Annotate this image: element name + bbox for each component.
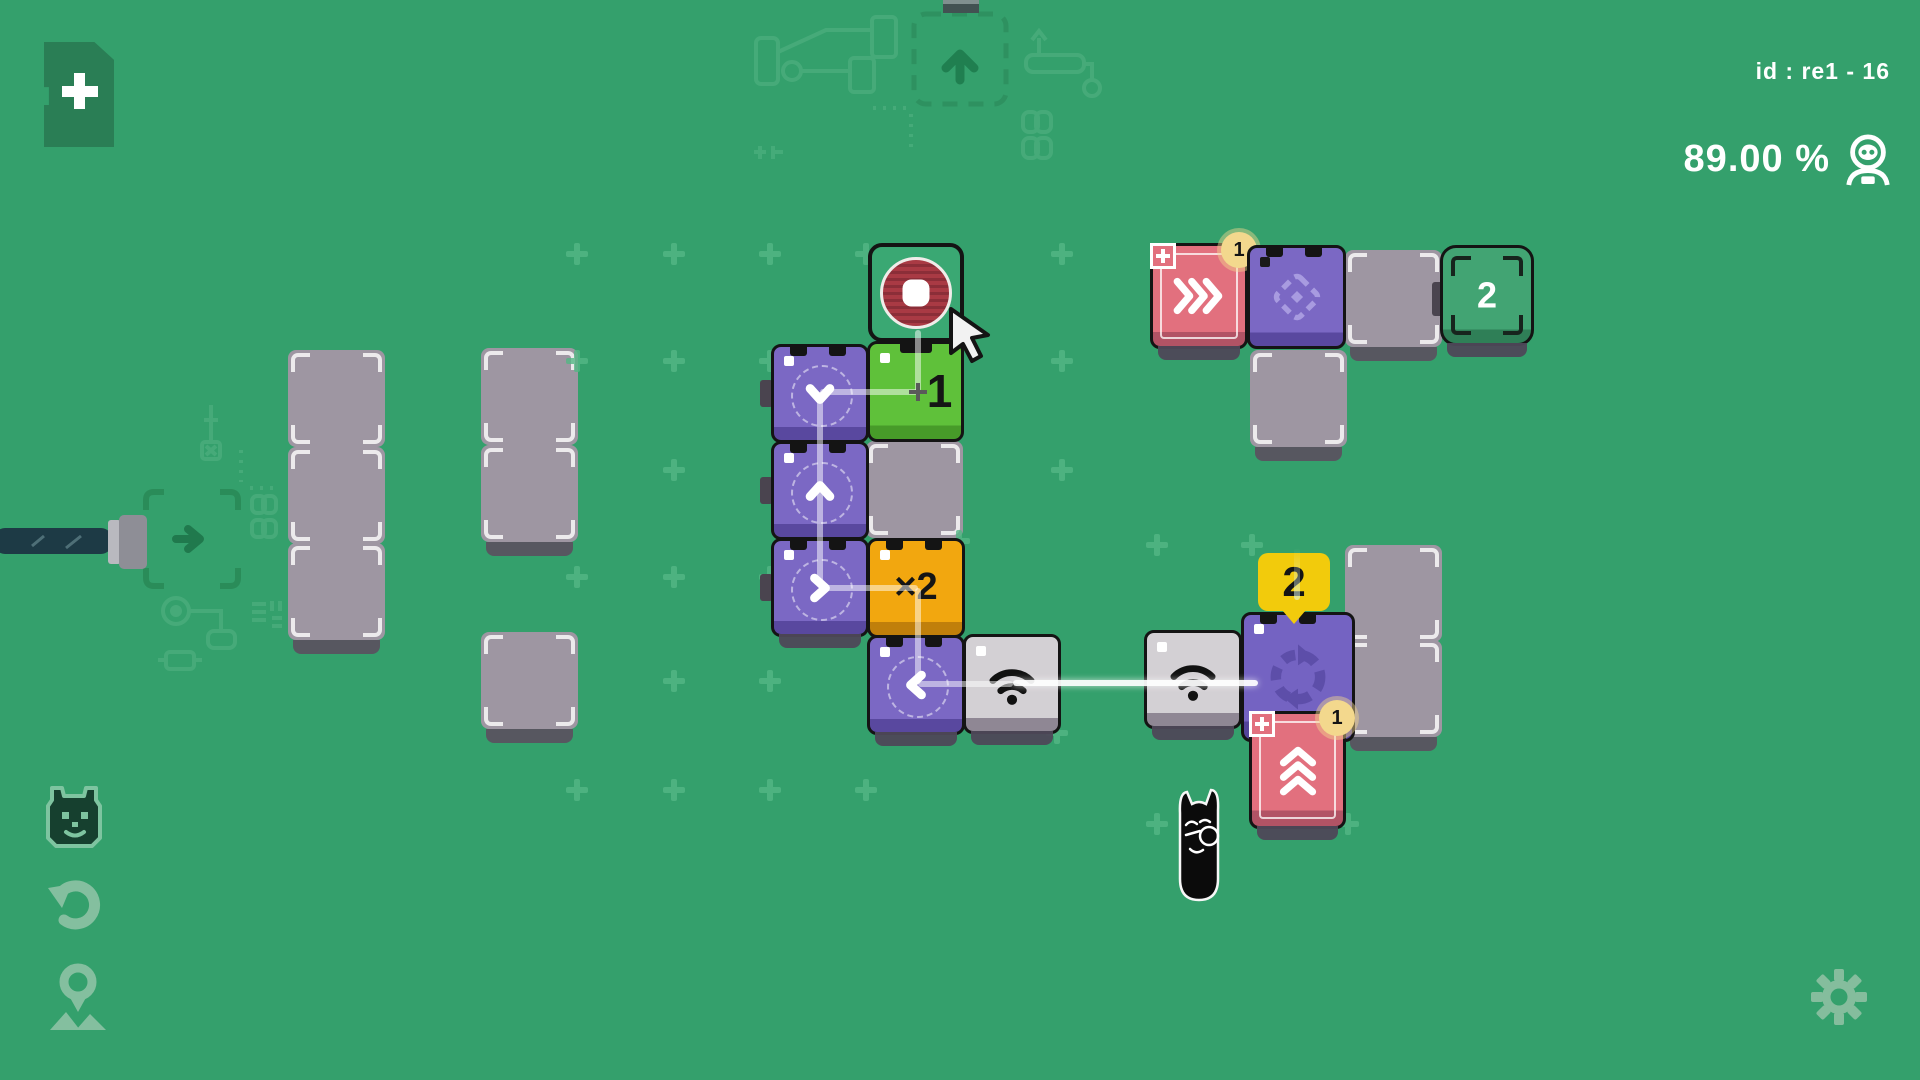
pad-corner <box>484 351 503 370</box>
tile-shadow <box>971 731 1054 745</box>
grid-cross <box>1051 243 1073 265</box>
pad-corner <box>363 546 382 565</box>
tile-notch <box>1266 245 1283 257</box>
grid-cross <box>1241 534 1263 556</box>
tile-notch <box>925 635 942 647</box>
tile-notch <box>886 538 903 550</box>
tile-notch <box>790 538 807 550</box>
board-pad[interactable] <box>481 445 578 542</box>
goal-bracket <box>1503 315 1523 335</box>
tile-label: 1 <box>927 368 953 414</box>
count-badge: 1 <box>1319 700 1355 736</box>
board-pad[interactable] <box>288 543 385 640</box>
tile-dot <box>976 646 986 656</box>
goal-bracket <box>1503 256 1523 276</box>
pad-corner <box>1325 425 1344 444</box>
pad-shadow <box>1255 447 1342 461</box>
goal-bracket <box>1451 315 1471 335</box>
add-card-button[interactable] <box>44 42 114 147</box>
tile-notch <box>1260 612 1277 624</box>
pad-corner <box>1420 643 1439 662</box>
pad-shadow <box>1350 737 1437 751</box>
tile-dot <box>880 550 890 560</box>
tile-notch <box>886 635 903 647</box>
pad-corner <box>1325 353 1344 372</box>
grid-cross <box>1051 459 1073 481</box>
pad-shadow <box>293 640 380 654</box>
node-boost-right[interactable]: 1 <box>1150 243 1248 349</box>
tile-shadow <box>1257 826 1339 840</box>
tile-dot <box>880 647 890 657</box>
tile-notch <box>829 538 846 550</box>
tile-dot <box>784 550 794 560</box>
pad-corner <box>291 425 310 444</box>
grid-cross <box>566 566 588 588</box>
pad-shadow <box>486 729 573 743</box>
pad-corner <box>291 618 310 637</box>
tile-notch <box>790 441 807 453</box>
grid-cross <box>1051 350 1073 372</box>
pad-corner <box>1420 620 1439 639</box>
goal-node-2[interactable]: 2 <box>1440 245 1534 346</box>
pad-corner <box>363 522 382 541</box>
tile-shadow <box>1158 346 1241 360</box>
connection-line <box>820 585 918 591</box>
connection-line <box>820 389 918 395</box>
tile-label: 2 <box>1477 277 1497 313</box>
triple-chevron-up-icon <box>1273 741 1323 799</box>
pad-shadow <box>1350 347 1437 361</box>
connection-line <box>915 588 921 684</box>
power-cable <box>0 515 147 569</box>
grid-cross <box>663 566 685 588</box>
tile-notch <box>925 538 942 550</box>
grid-cross <box>566 779 588 801</box>
grid-cross <box>566 350 588 372</box>
pad-corner <box>1348 325 1367 344</box>
pad-corner <box>484 448 503 467</box>
grid-cross <box>1146 813 1168 835</box>
plus-icon <box>74 73 85 109</box>
grid-cross <box>663 670 685 692</box>
pad-corner <box>363 618 382 637</box>
tile-notch <box>829 344 846 356</box>
pad-corner <box>556 635 575 654</box>
board-pad[interactable] <box>1250 350 1347 447</box>
pad-corner <box>291 353 310 372</box>
pad-corner <box>363 353 382 372</box>
start-node-outline <box>146 492 238 586</box>
mouse-cursor <box>948 306 996 366</box>
pad-corner <box>556 707 575 726</box>
grid-cross <box>759 243 781 265</box>
pad-corner <box>363 450 382 469</box>
grid-cross <box>759 779 781 801</box>
stop-icon <box>903 279 930 306</box>
pad-corner <box>1420 715 1439 734</box>
pad-corner <box>484 707 503 726</box>
plus-icon <box>1260 717 1264 731</box>
connection-line <box>817 392 823 588</box>
grid-cross <box>663 243 685 265</box>
cat-head-icon[interactable] <box>42 778 108 852</box>
plus-icon <box>1161 249 1165 263</box>
pad-corner <box>869 444 888 463</box>
diamond-icon <box>1267 267 1327 327</box>
board-pad[interactable] <box>866 441 963 538</box>
pad-corner <box>1420 253 1439 272</box>
pad-corner <box>556 448 575 467</box>
plus-badge <box>1249 711 1275 737</box>
line-junction-cross <box>909 383 927 401</box>
pad-corner <box>484 635 503 654</box>
accuracy-readout: 89.00 % <box>1684 130 1894 188</box>
circuit-decoration-top <box>740 0 1140 200</box>
pad-corner <box>484 520 503 539</box>
circuit-decoration-left <box>0 380 300 680</box>
pad-corner <box>1420 548 1439 567</box>
pad-corner <box>484 423 503 442</box>
pad-corner <box>941 444 960 463</box>
pad-corner <box>291 450 310 469</box>
connection-line <box>1294 548 1300 600</box>
level-id-text: id : re1 - 16 <box>1756 58 1890 85</box>
tile-notch <box>790 344 807 356</box>
connection-line <box>918 681 1013 687</box>
pad-shadow <box>486 542 573 556</box>
accuracy-value: 89.00 % <box>1684 138 1830 181</box>
grid-cross <box>1146 534 1168 556</box>
tile-dot <box>1157 642 1167 652</box>
gear-icon[interactable] <box>1810 968 1868 1026</box>
black-cat-character[interactable] <box>1166 783 1232 905</box>
pad-corner <box>869 516 888 535</box>
stop-target-icon <box>880 257 952 329</box>
tile-dot <box>1254 624 1264 634</box>
pad-corner <box>1253 425 1272 444</box>
tile-dot <box>784 453 794 463</box>
node-boost-up[interactable]: 1 <box>1249 711 1346 829</box>
pad-corner <box>291 522 310 541</box>
goal-bracket <box>1451 256 1471 276</box>
tile-shadow <box>1447 343 1526 357</box>
undo-icon[interactable] <box>46 874 108 934</box>
pad-corner <box>556 423 575 442</box>
plus-badge <box>1150 243 1176 269</box>
pad-corner <box>1348 253 1367 272</box>
grid-cross <box>663 350 685 372</box>
robot-head-icon[interactable] <box>1842 130 1894 188</box>
triple-chevron-right-icon <box>1170 271 1228 321</box>
board-pad[interactable] <box>288 447 385 544</box>
board-pad[interactable] <box>1345 250 1442 347</box>
board-pad[interactable] <box>288 350 385 447</box>
tile-dot <box>880 353 890 363</box>
board-pad[interactable] <box>481 632 578 729</box>
pad-corner <box>1253 353 1272 372</box>
tile-shadow <box>779 634 862 648</box>
location-pin-icon[interactable] <box>46 960 110 1032</box>
tile-shadow <box>1152 726 1235 740</box>
grid-cross <box>663 779 685 801</box>
grid-cross <box>566 243 588 265</box>
board-pad[interactable] <box>1345 640 1442 737</box>
connection-line <box>1013 680 1258 686</box>
pad-corner <box>1348 548 1367 567</box>
grid-cross <box>855 779 877 801</box>
pad-corner <box>363 425 382 444</box>
pad-corner <box>1420 325 1439 344</box>
tile-notch <box>829 441 846 453</box>
rotate-icon <box>1263 642 1333 712</box>
grid-cross <box>759 670 781 692</box>
pad-corner <box>556 520 575 539</box>
grid-cross <box>663 459 685 481</box>
tile-shadow <box>875 732 958 746</box>
tile-dot <box>784 356 794 366</box>
game-stage: id : re1 - 16 89.00 % <box>0 0 1920 1080</box>
tile-dot <box>1260 257 1270 267</box>
board-pad[interactable] <box>1345 545 1442 642</box>
node-diamond[interactable] <box>1247 245 1346 349</box>
pad-corner <box>291 546 310 565</box>
board-pad[interactable] <box>481 348 578 445</box>
tile-notch <box>1305 245 1322 257</box>
